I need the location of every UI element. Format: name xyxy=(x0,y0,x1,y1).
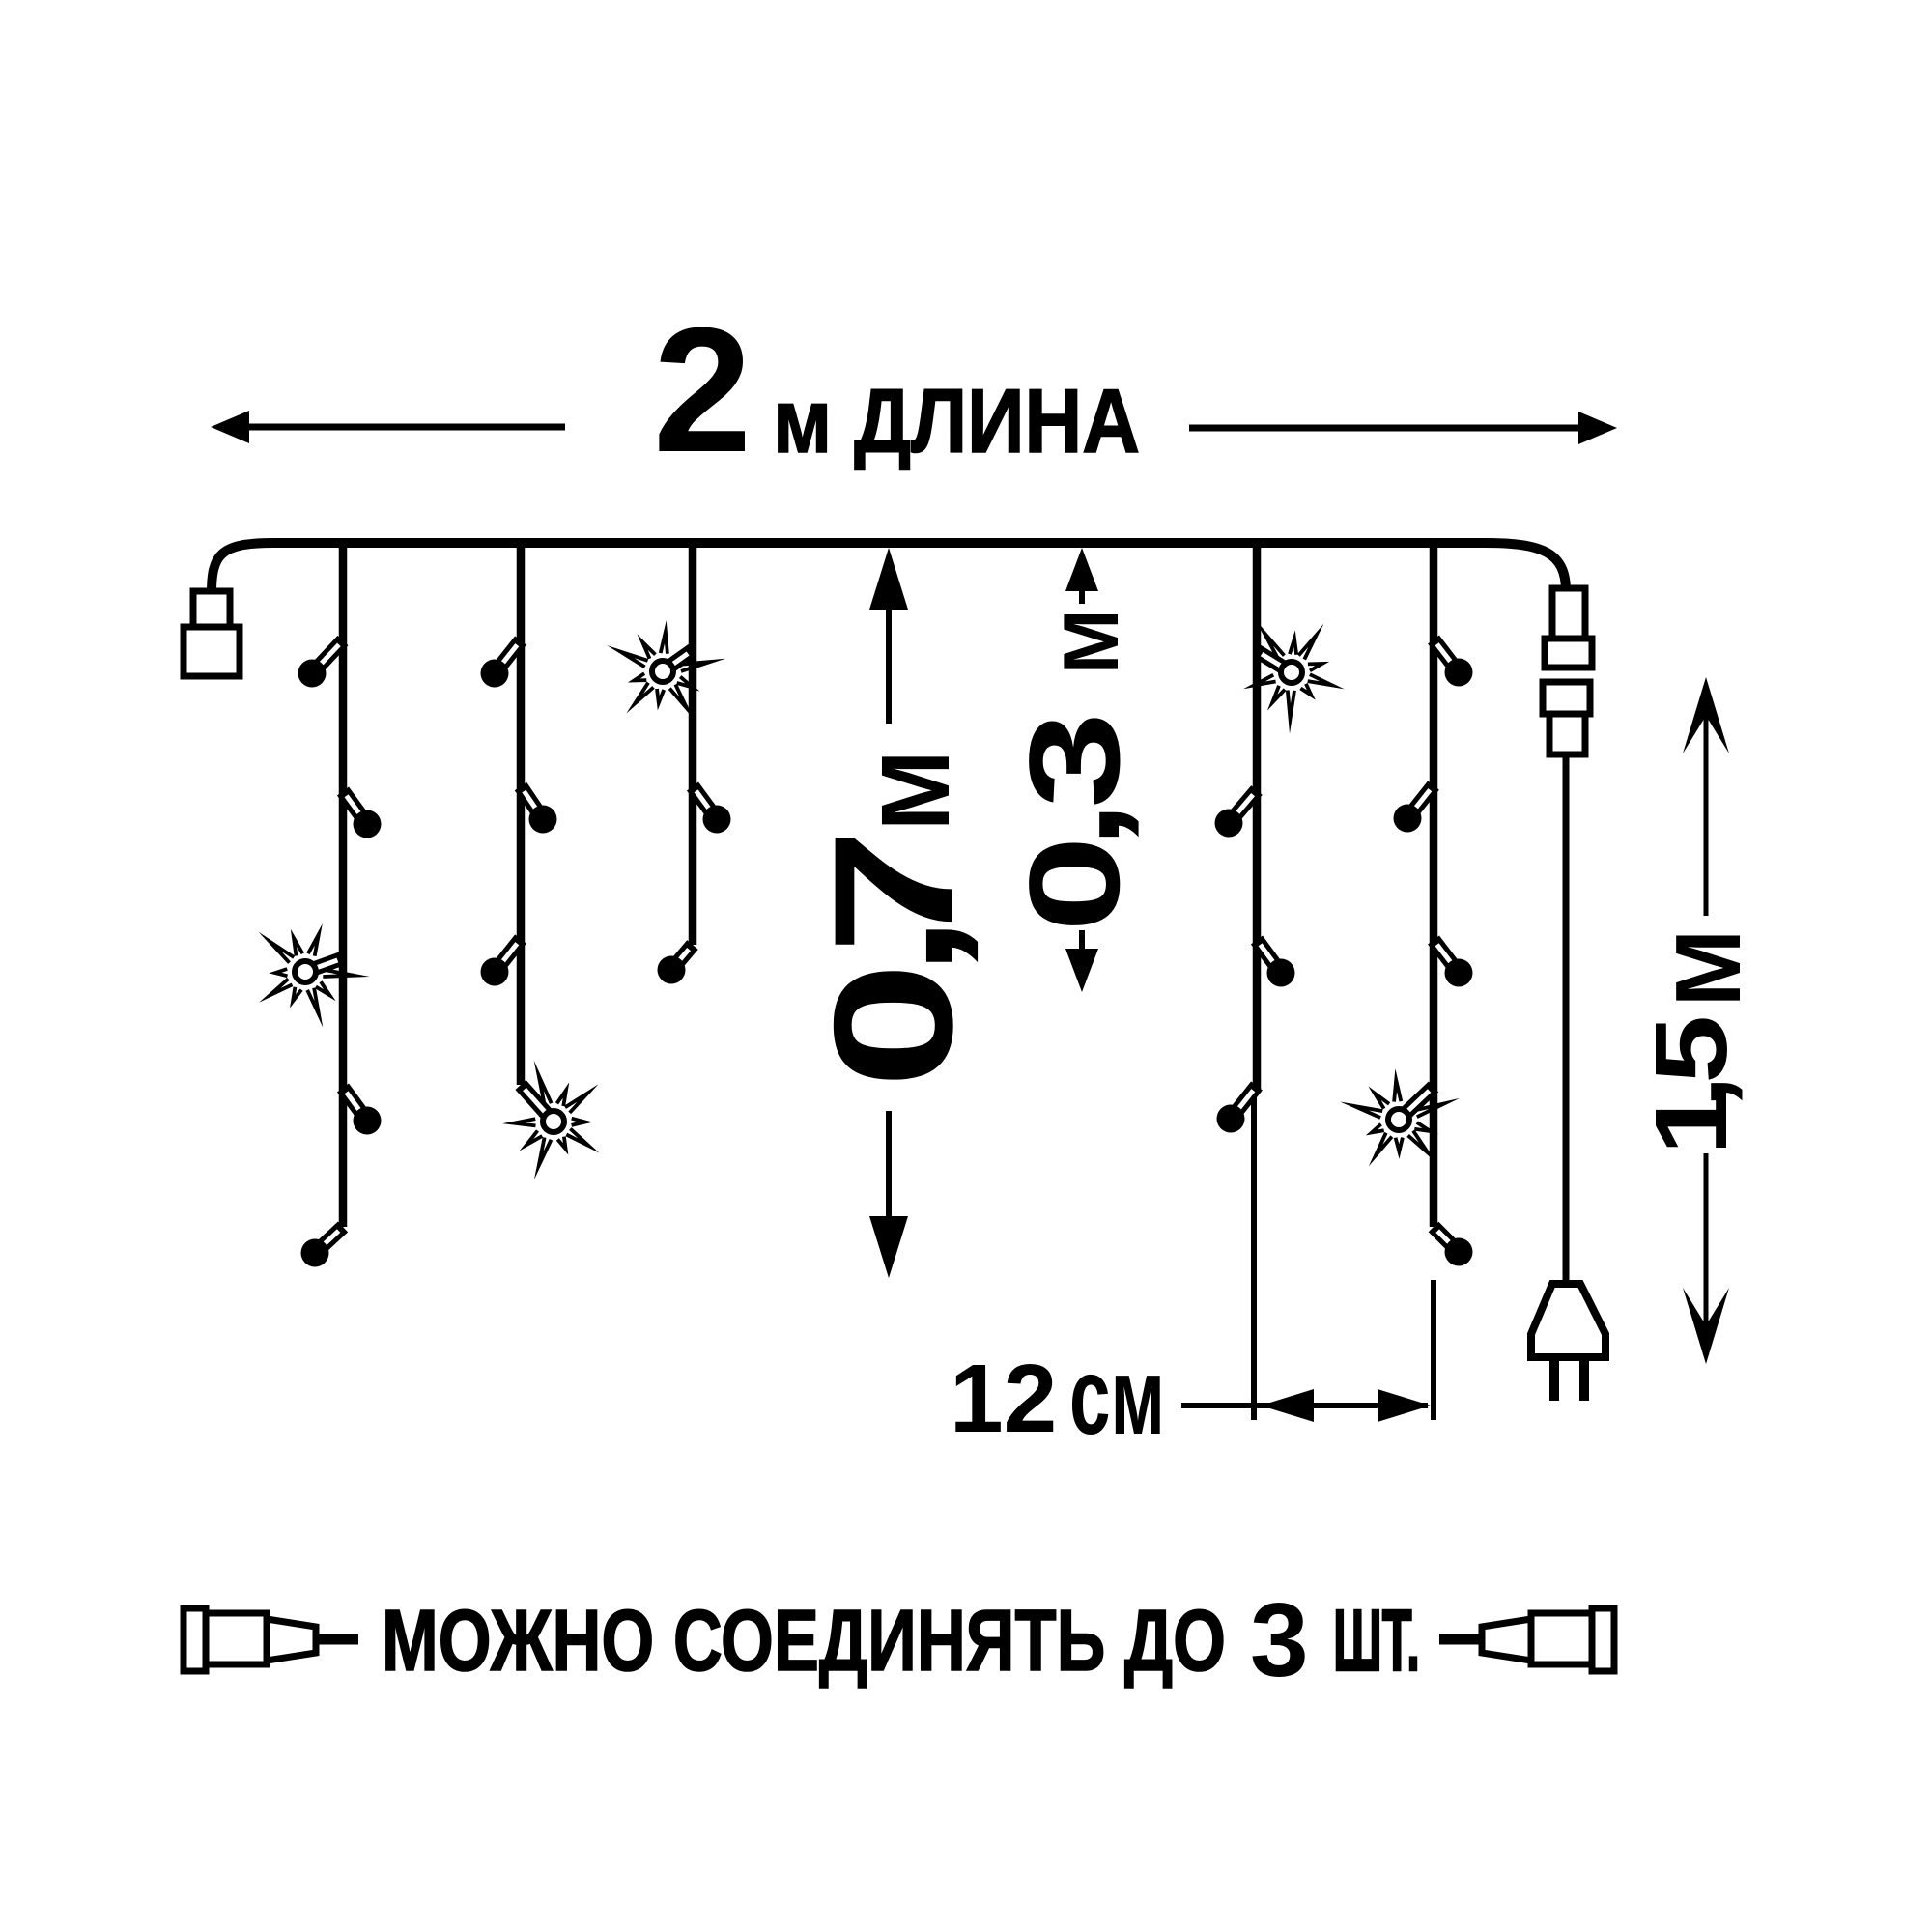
svg-text:М: М xyxy=(1048,610,1135,674)
svg-text:м ДЛИНА: м ДЛИНА xyxy=(773,370,1140,471)
svg-text:см: см xyxy=(1069,1335,1165,1457)
svg-text:3: 3 xyxy=(1250,1581,1309,1699)
svg-text:ШТ.: ШТ. xyxy=(1333,1593,1420,1690)
svg-text:0,7: 0,7 xyxy=(800,828,988,1089)
svg-text:12: 12 xyxy=(950,1345,1057,1453)
svg-text:МОЖНО СОЕДИНЯТЬ ДО: МОЖНО СОЕДИНЯТЬ ДО xyxy=(382,1593,1226,1690)
svg-text:0,3: 0,3 xyxy=(1003,712,1146,932)
svg-text:М: М xyxy=(1657,929,1760,1007)
svg-text:1,5: 1,5 xyxy=(1634,1015,1748,1155)
svg-text:М: М xyxy=(862,751,970,831)
svg-text:2: 2 xyxy=(653,290,752,489)
